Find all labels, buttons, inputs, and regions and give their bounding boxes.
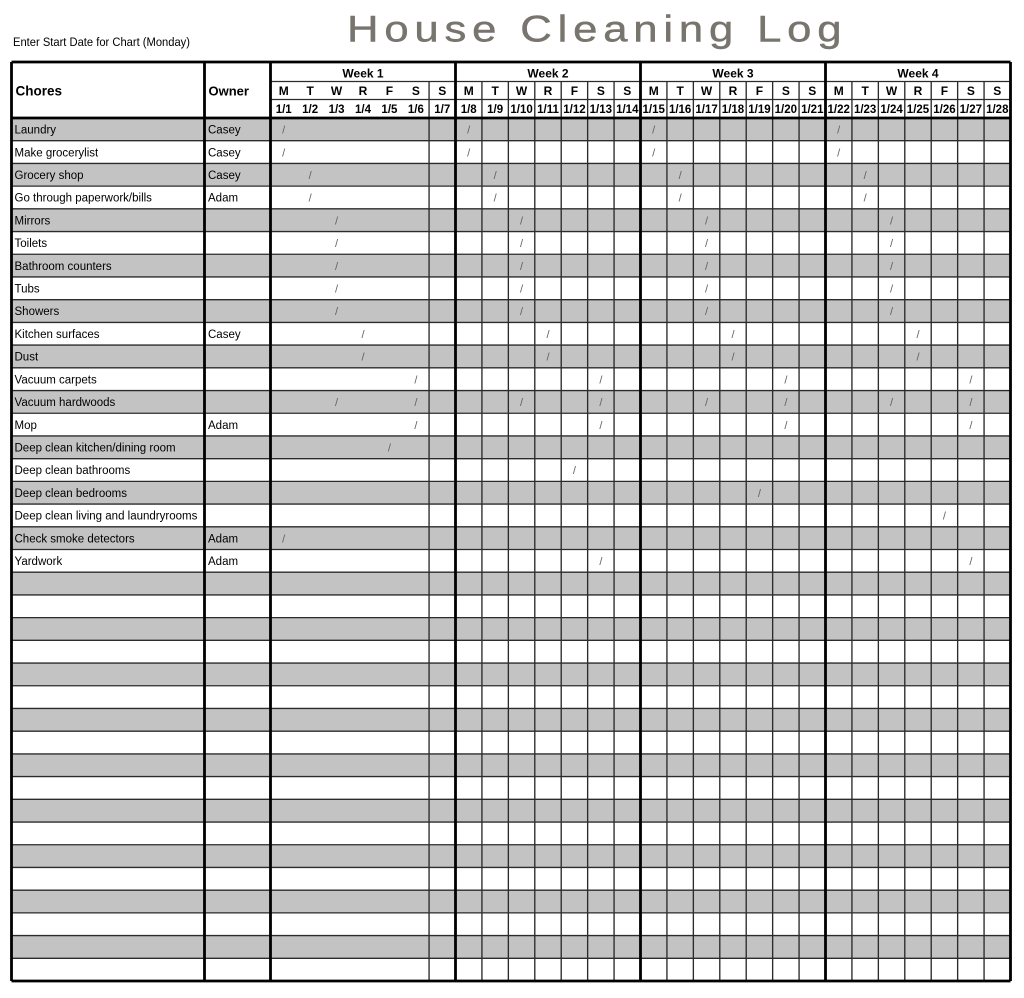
svg-text:Casey: Casey	[208, 170, 241, 182]
svg-text:R: R	[729, 84, 738, 98]
svg-text:F: F	[386, 84, 393, 98]
svg-text:1/2: 1/2	[302, 104, 318, 116]
svg-text:Tubs: Tubs	[15, 284, 40, 296]
svg-text:1/28: 1/28	[986, 104, 1009, 116]
svg-text:F: F	[941, 84, 948, 98]
svg-text:Adam: Adam	[208, 533, 238, 545]
svg-text:M: M	[649, 84, 659, 98]
svg-text:W: W	[886, 84, 898, 98]
svg-text:1/8: 1/8	[461, 104, 478, 116]
svg-text:Make grocerylist: Make grocerylist	[15, 147, 100, 159]
svg-text:1/19: 1/19	[748, 104, 770, 116]
svg-text:1/27: 1/27	[960, 104, 982, 116]
svg-text:T: T	[491, 84, 499, 98]
svg-text:Grocery shop: Grocery shop	[15, 170, 84, 182]
svg-text:M: M	[464, 84, 474, 98]
svg-text:1/11: 1/11	[537, 104, 559, 116]
svg-text:Week 2: Week 2	[527, 67, 568, 81]
svg-text:1/25: 1/25	[907, 104, 930, 116]
svg-text:Adam: Adam	[208, 193, 238, 205]
svg-text:1/12: 1/12	[563, 104, 585, 116]
svg-text:Check smoke detectors: Check smoke detectors	[15, 533, 135, 545]
svg-text:Showers: Showers	[15, 306, 60, 318]
svg-text:M: M	[279, 84, 289, 98]
svg-text:Owner: Owner	[209, 84, 249, 99]
svg-text:Vacuum hardwoods: Vacuum hardwoods	[15, 397, 116, 409]
svg-text:T: T	[861, 84, 869, 98]
svg-text:1/6: 1/6	[408, 104, 424, 116]
svg-text:S: S	[808, 84, 816, 98]
svg-text:Toilets: Toilets	[15, 238, 48, 250]
svg-text:R: R	[544, 84, 553, 98]
svg-text:S: S	[623, 84, 631, 98]
svg-text:T: T	[676, 84, 684, 98]
svg-text:Bathroom counters: Bathroom counters	[15, 261, 112, 273]
svg-text:T: T	[306, 84, 314, 98]
svg-text:Deep clean bathrooms: Deep clean bathrooms	[15, 465, 131, 477]
svg-text:W: W	[701, 84, 713, 98]
svg-text:1/5: 1/5	[381, 104, 398, 116]
svg-text:W: W	[331, 84, 343, 98]
svg-text:Yardwork: Yardwork	[15, 556, 63, 568]
svg-text:1/4: 1/4	[355, 104, 372, 116]
svg-text:Kitchen surfaces: Kitchen surfaces	[15, 329, 100, 341]
svg-text:1/16: 1/16	[669, 104, 691, 116]
svg-text:Enter Start Date for Chart (Mo: Enter Start Date for Chart (Monday)	[13, 35, 190, 49]
svg-text:Casey: Casey	[208, 329, 241, 341]
svg-text:S: S	[993, 84, 1001, 98]
svg-text:Casey: Casey	[208, 125, 241, 137]
svg-text:Casey: Casey	[208, 147, 241, 159]
svg-text:S: S	[782, 84, 790, 98]
svg-text:1/15: 1/15	[643, 104, 666, 116]
svg-text:1/20: 1/20	[775, 104, 797, 116]
svg-text:Vacuum carpets: Vacuum carpets	[15, 374, 97, 386]
svg-text:1/13: 1/13	[590, 104, 612, 116]
svg-text:S: S	[412, 84, 420, 98]
svg-text:1/22: 1/22	[828, 104, 850, 116]
svg-text:1/17: 1/17	[695, 104, 717, 116]
svg-text:1/18: 1/18	[722, 104, 745, 116]
svg-text:F: F	[571, 84, 578, 98]
svg-text:Adam: Adam	[208, 420, 238, 432]
svg-text:1/10: 1/10	[510, 104, 532, 116]
svg-text:1/21: 1/21	[801, 104, 824, 116]
svg-text:1/24: 1/24	[880, 104, 903, 116]
svg-text:S: S	[597, 84, 605, 98]
svg-text:Deep clean kitchen/dining room: Deep clean kitchen/dining room	[15, 443, 176, 455]
svg-text:Week 1: Week 1	[342, 67, 383, 81]
svg-text:Adam: Adam	[208, 556, 238, 568]
svg-text:R: R	[359, 84, 368, 98]
svg-text:House Cleaning Log: House Cleaning Log	[347, 8, 847, 50]
svg-text:Deep clean living and laundryr: Deep clean living and laundryrooms	[15, 511, 198, 523]
svg-text:Laundry: Laundry	[15, 125, 57, 137]
svg-text:1/23: 1/23	[854, 104, 876, 116]
svg-text:1/14: 1/14	[616, 104, 639, 116]
svg-text:S: S	[438, 84, 446, 98]
svg-text:Week 3: Week 3	[712, 67, 753, 81]
svg-text:M: M	[834, 84, 844, 98]
svg-text:Chores: Chores	[16, 84, 63, 99]
svg-text:S: S	[967, 84, 975, 98]
svg-text:1/3: 1/3	[329, 104, 345, 116]
svg-text:1/7: 1/7	[434, 104, 450, 116]
svg-text:Go through paperwork/bills: Go through paperwork/bills	[15, 193, 153, 205]
svg-text:1/9: 1/9	[487, 104, 503, 116]
svg-text:1/1: 1/1	[276, 104, 293, 116]
svg-text:Mop: Mop	[15, 420, 37, 432]
svg-text:R: R	[914, 84, 923, 98]
svg-text:Deep clean bedrooms: Deep clean bedrooms	[15, 488, 128, 500]
svg-text:Week 4: Week 4	[897, 67, 938, 81]
svg-text:W: W	[516, 84, 528, 98]
svg-text:1/26: 1/26	[933, 104, 955, 116]
svg-text:F: F	[756, 84, 763, 98]
svg-text:Dust: Dust	[15, 352, 39, 364]
svg-text:Mirrors: Mirrors	[15, 215, 51, 227]
